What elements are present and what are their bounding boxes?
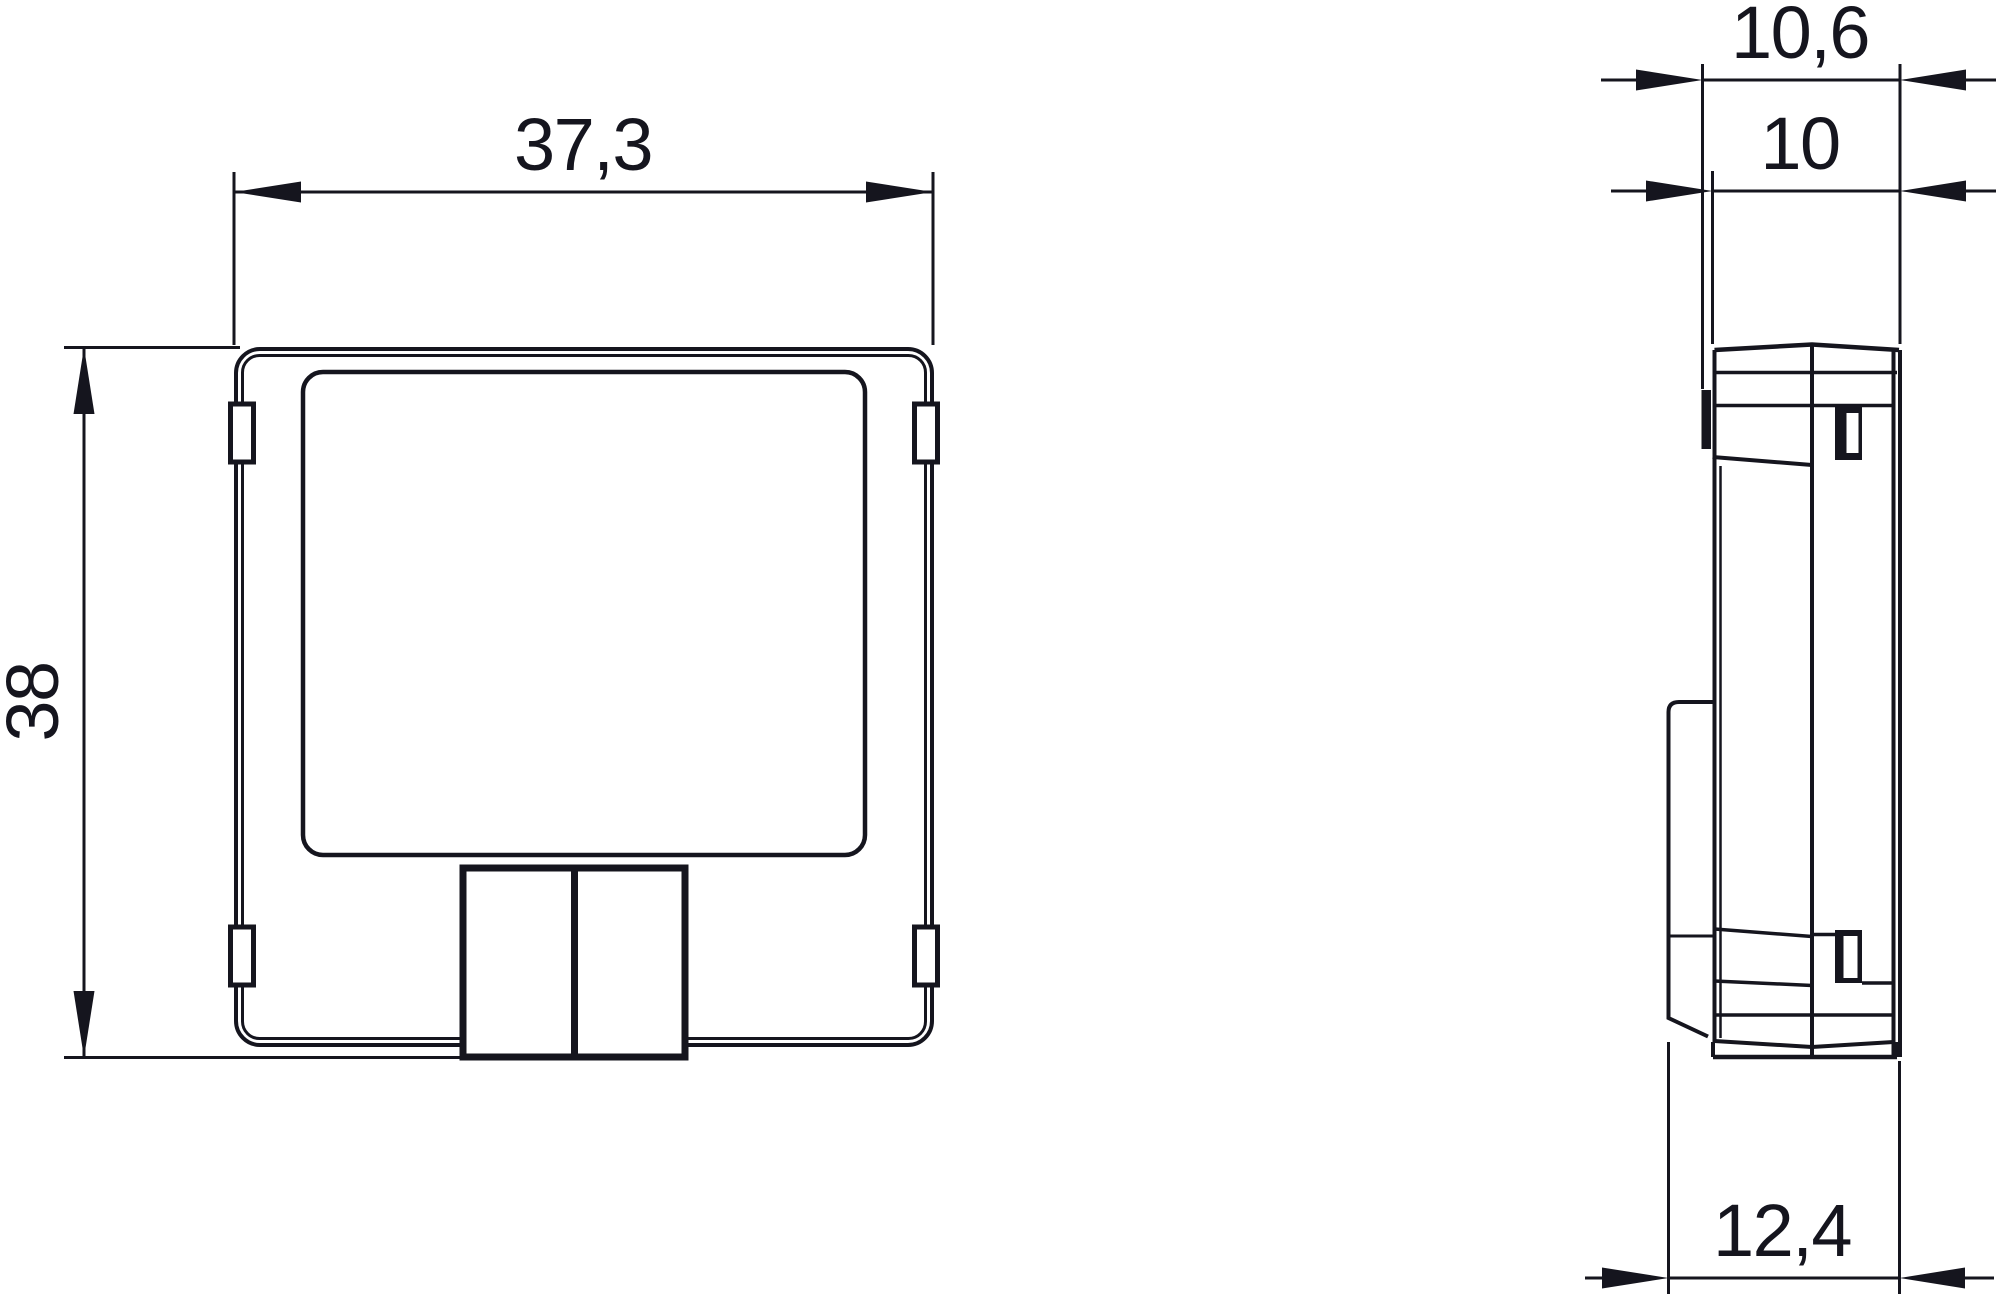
side-view	[1669, 64, 1901, 1057]
dim-front-width-label: 37,3	[514, 103, 652, 186]
dimension-front-width: 37,3	[234, 103, 933, 345]
front-clip-left-top	[231, 404, 254, 462]
arrowhead-top	[74, 348, 95, 415]
front-label-area	[303, 372, 865, 855]
side-bottom-dip	[1715, 1041, 1894, 1047]
arrowhead-right	[866, 182, 933, 203]
drawing-canvas: 37,3 38	[0, 0, 2000, 1302]
arrowhead-right	[1900, 70, 1966, 91]
side-clip-window-top	[1835, 406, 1862, 460]
dimension-drawing: 37,3 38	[0, 0, 2000, 1302]
side-line-b	[1715, 981, 1813, 986]
dimension-depth-total: 12,4	[1585, 1042, 1994, 1294]
front-clip-right-top	[915, 404, 938, 462]
arrowhead-left	[1636, 70, 1703, 91]
dim-front-height-label: 38	[0, 662, 74, 741]
arrowhead-bottom	[74, 991, 95, 1058]
dimension-depth-overall: 10,6	[1601, 0, 1996, 91]
side-terminal-cover	[1669, 702, 1715, 1037]
dim-depth-body-label: 10	[1760, 102, 1839, 185]
dimension-depth-body: 10	[1611, 102, 1996, 202]
arrowhead-right	[1900, 1268, 1966, 1289]
front-clip-left-bottom	[231, 927, 254, 985]
side-clip-window-bottom	[1835, 930, 1862, 983]
side-top-edge	[1715, 345, 1900, 351]
dim-depth-total-label: 12,4	[1713, 1189, 1851, 1272]
arrowhead-left	[1602, 1268, 1669, 1289]
front-clip-right-bottom	[915, 927, 938, 985]
dim-depth-overall-label: 10,6	[1731, 0, 1869, 74]
arrowhead-left	[234, 182, 301, 203]
side-front-clip-bar	[1702, 390, 1712, 449]
arrowhead-right	[1900, 181, 1966, 202]
side-cap-bottom	[1713, 457, 1813, 465]
front-view	[231, 349, 938, 1057]
side-line-a	[1715, 929, 1813, 937]
